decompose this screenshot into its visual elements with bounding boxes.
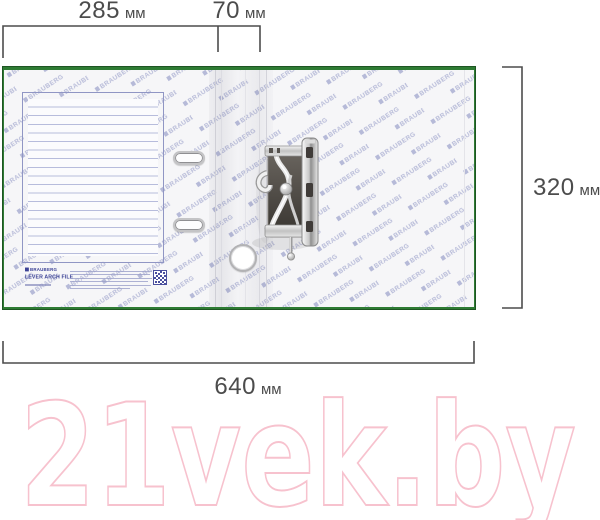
qr-code [153,270,167,285]
finger-slot [173,218,205,232]
lever-arch-file: BRAUBERG BRAUBERG BRAU [2,66,476,310]
brauberg-logo-icon [25,268,29,272]
site-watermark-text: 21vek.by [20,390,576,520]
dimension-line-right [502,67,522,308]
fine-print-text [70,271,152,291]
cover-width-unit: мм [125,5,146,22]
dimension-label-cover-width: 285мм [52,0,172,25]
height-value: 320 [533,174,575,201]
dimension-label-spine-width: 70мм [204,0,274,25]
dimension-line-top [3,26,260,58]
dimension-label-height: 320мм [533,174,600,202]
ruled-label-area [22,92,164,263]
folder-interior: BRAUBERG BRAUBERG BRAU [4,70,474,307]
lever-arch-mechanism [248,125,328,270]
brand-name-text: BRAUBERG [30,267,57,272]
spine-width-unit: мм [245,5,266,22]
spine-width-value: 70 [212,0,240,24]
fold-crease [215,70,216,307]
height-unit: мм [580,182,600,199]
product-name-text: LEVER ARCH FILE [25,274,51,280]
fold-crease [221,70,222,307]
brand-label: BRAUBERG LEVER ARCH FILE [25,267,69,286]
cover-width-value: 285 [78,0,120,24]
fold-crease [464,70,465,307]
finger-slot [173,151,205,165]
brand-logo-row: BRAUBERG [25,267,49,272]
dimension-line-bottom [3,341,474,363]
product-subtitle-line [25,284,51,286]
product-image: 285мм 70мм 320мм 640мм BRAUBERG BRAUBERG [0,0,600,520]
site-watermark: 21vek.by [0,390,600,520]
